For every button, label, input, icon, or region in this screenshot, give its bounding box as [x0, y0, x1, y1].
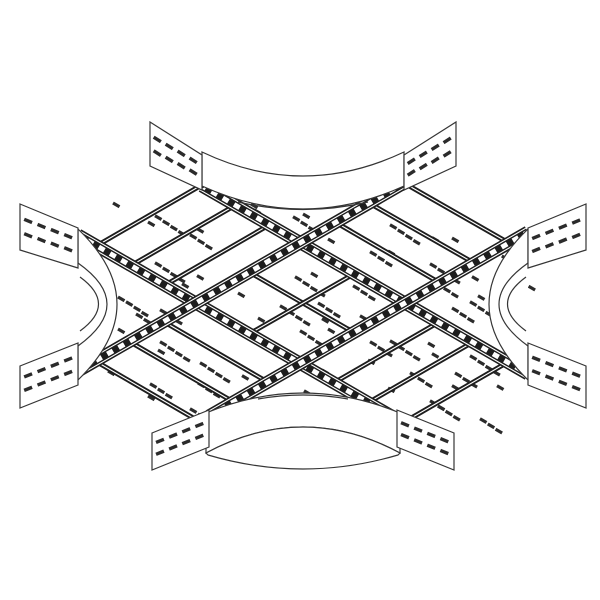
fan-bottom: [206, 393, 400, 469]
page: [0, 0, 600, 600]
cross-drawing: [0, 0, 600, 600]
